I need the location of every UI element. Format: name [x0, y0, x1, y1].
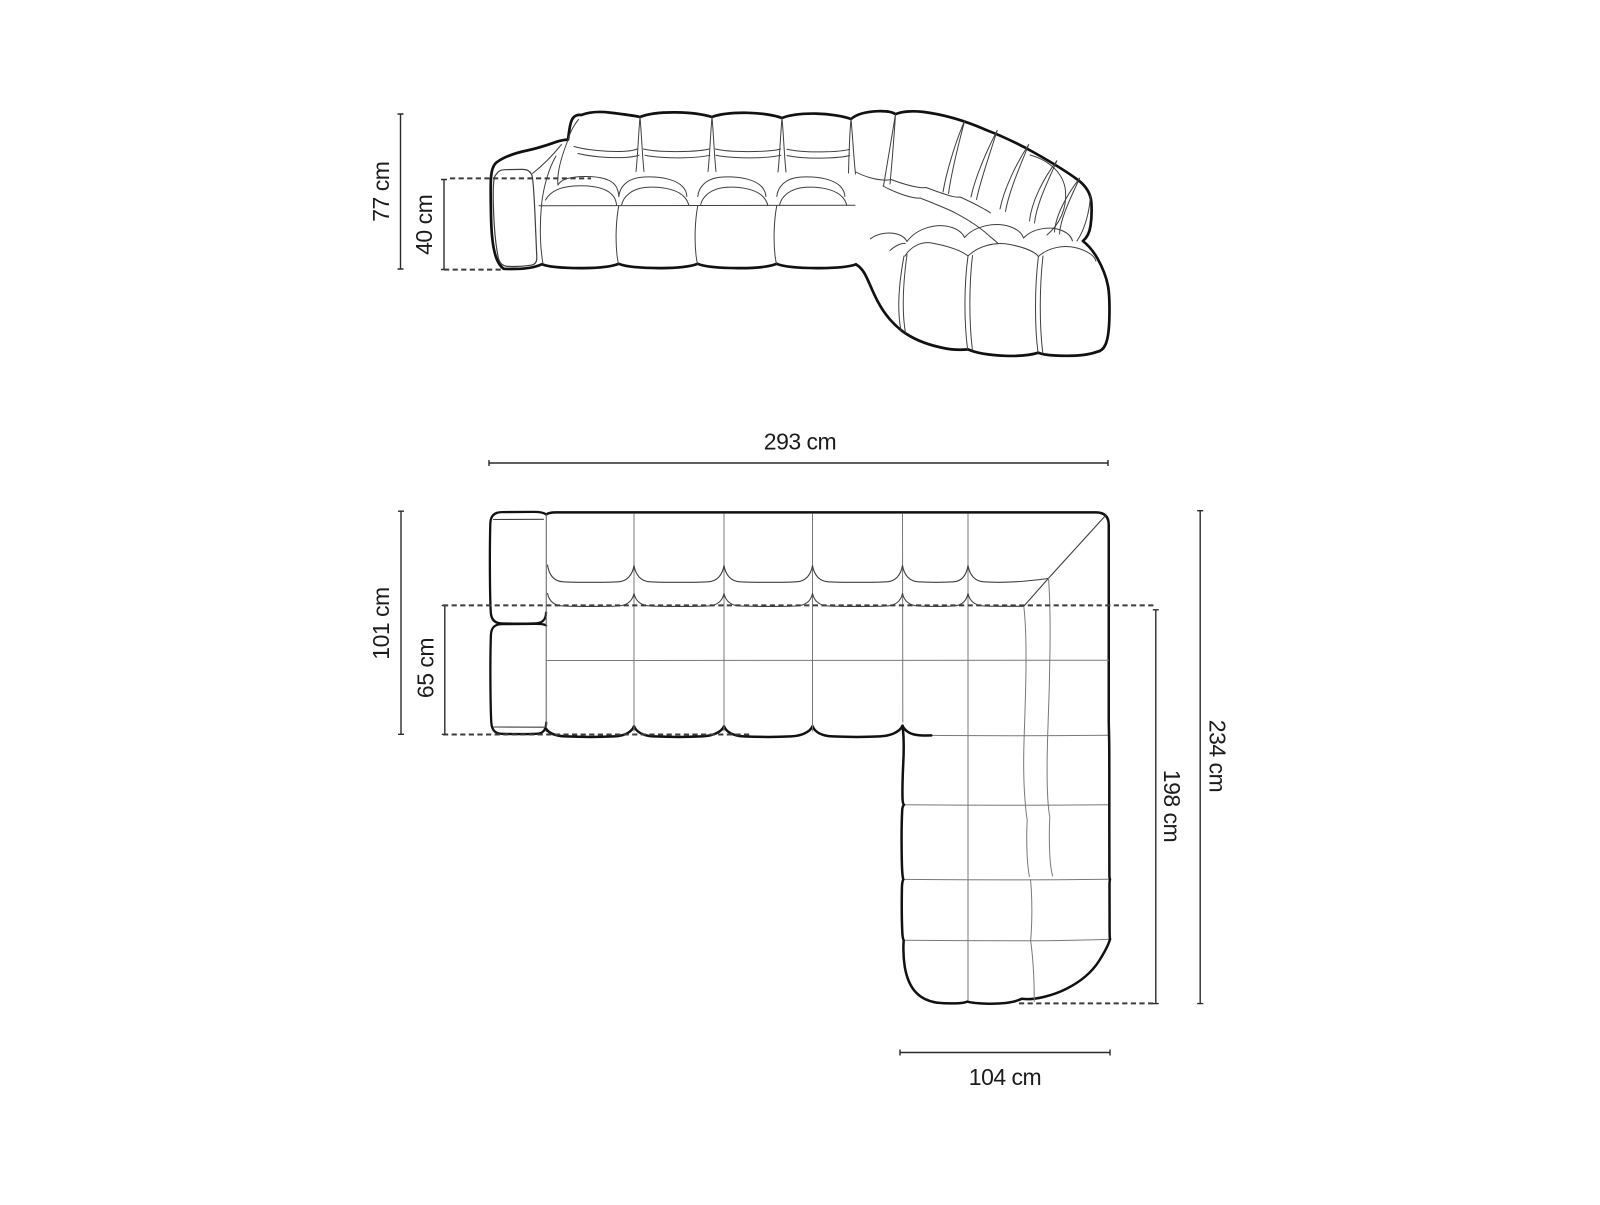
svg-text:104 cm: 104 cm	[969, 1064, 1041, 1090]
svg-text:101 cm: 101 cm	[368, 587, 394, 659]
svg-text:40 cm: 40 cm	[411, 195, 437, 255]
svg-text:234 cm: 234 cm	[1204, 720, 1230, 792]
svg-text:65 cm: 65 cm	[413, 638, 439, 698]
svg-text:293 cm: 293 cm	[764, 429, 836, 455]
svg-text:77 cm: 77 cm	[368, 162, 394, 222]
svg-text:198 cm: 198 cm	[1159, 770, 1185, 842]
